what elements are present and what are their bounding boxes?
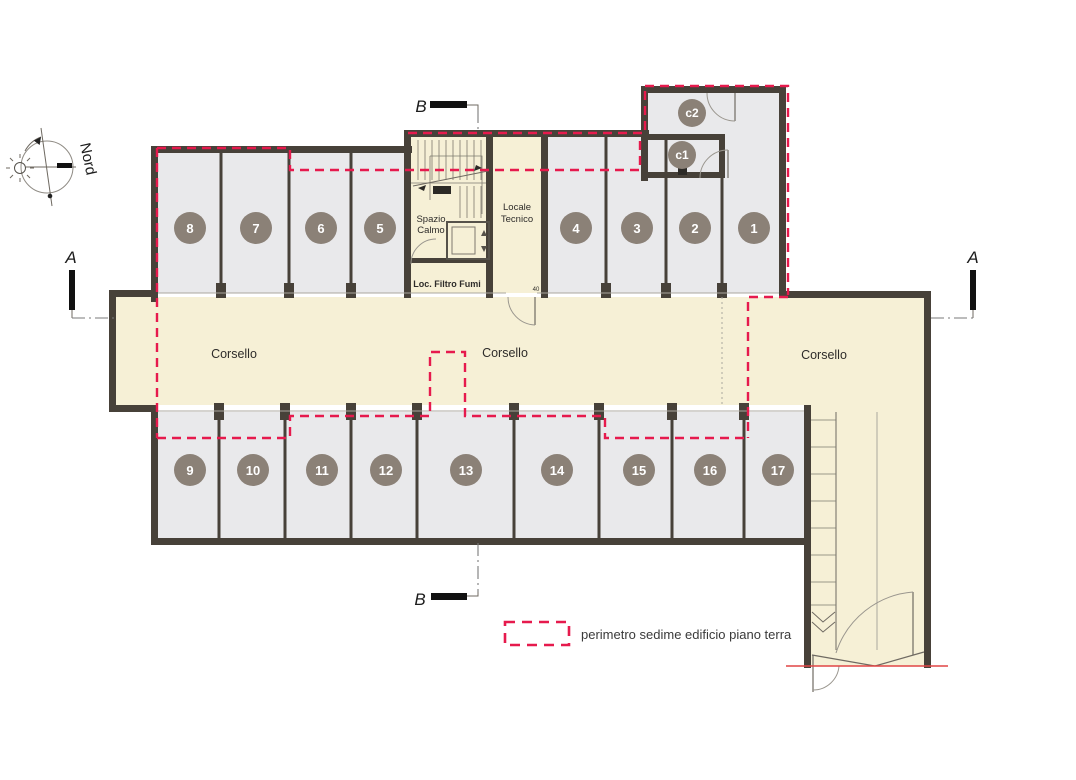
sun-icon xyxy=(6,154,34,182)
north-compass: Nord xyxy=(6,128,99,206)
stall-badge-3: 3 xyxy=(621,212,653,244)
svg-text:c2: c2 xyxy=(685,106,699,120)
stall-badge-6: 6 xyxy=(305,212,337,244)
stall-badge-8: 8 xyxy=(174,212,206,244)
stall-badge-2: 2 xyxy=(679,212,711,244)
svg-text:5: 5 xyxy=(376,221,383,236)
stall-badge-4: 4 xyxy=(560,212,592,244)
svg-text:13: 13 xyxy=(459,463,473,478)
stall-badge-10: 10 xyxy=(237,454,269,486)
svg-text:11: 11 xyxy=(315,463,329,478)
stall-badge-14: 14 xyxy=(541,454,573,486)
svg-text:10: 10 xyxy=(246,463,260,478)
section-letter-b: B xyxy=(414,590,425,609)
svg-text:Calmo: Calmo xyxy=(417,225,444,236)
section-letter-a: A xyxy=(64,248,76,267)
svg-text:2: 2 xyxy=(691,221,698,236)
stall-badge-11: 11 xyxy=(306,454,338,486)
stall-badge-13: 13 xyxy=(450,454,482,486)
stall-badge-15: 15 xyxy=(623,454,655,486)
stall-badge-12: 12 xyxy=(370,454,402,486)
cellar-badge-c1: c1 xyxy=(668,141,696,169)
svg-text:4: 4 xyxy=(572,221,580,236)
stall-badge-5: 5 xyxy=(364,212,396,244)
section-marker-a-left: A xyxy=(64,248,116,318)
north-label: Nord xyxy=(76,141,99,176)
section-letter-a: A xyxy=(966,248,978,267)
svg-text:3: 3 xyxy=(633,221,640,236)
section-marker-b-bottom: B xyxy=(414,543,478,609)
svg-text:Tecnico: Tecnico xyxy=(501,214,533,225)
corsello-label-right: Corsello xyxy=(801,348,847,362)
section-marker-a-right: A xyxy=(931,248,979,318)
svg-text:1: 1 xyxy=(750,221,757,236)
section-letter-b: B xyxy=(415,97,426,116)
svg-text:16: 16 xyxy=(703,463,717,478)
section-marker-b-top: B xyxy=(415,97,478,133)
corsello-label-left: Corsello xyxy=(211,347,257,361)
spazio-calmo-label: Spazio xyxy=(416,214,445,225)
svg-text:15: 15 xyxy=(632,463,646,478)
svg-text:8: 8 xyxy=(186,221,193,236)
legend-dashed-swatch xyxy=(505,622,569,645)
dimension-note: 40 xyxy=(533,287,540,293)
stall-badge-17: 17 xyxy=(762,454,794,486)
locale-tecnico-label: Locale xyxy=(503,202,531,213)
floor-plan-sheet: A A B B Nord Corsello xyxy=(0,0,1076,780)
svg-text:7: 7 xyxy=(252,221,259,236)
stall-badge-9: 9 xyxy=(174,454,206,486)
corsello-label-center: Corsello xyxy=(482,346,528,360)
room-fills xyxy=(116,93,924,666)
stall-badge-1: 1 xyxy=(738,212,770,244)
filtro-fumi-label: Loc. Filtro Fumi xyxy=(413,279,481,289)
svg-text:9: 9 xyxy=(186,463,193,478)
legend: perimetro sedime edificio piano terra xyxy=(505,622,792,645)
svg-text:14: 14 xyxy=(550,463,565,478)
floor-plan-drawing: A A B B Nord Corsello xyxy=(0,0,1076,780)
svg-text:6: 6 xyxy=(317,221,324,236)
svg-text:12: 12 xyxy=(379,463,393,478)
svg-text:17: 17 xyxy=(771,463,785,478)
svg-text:c1: c1 xyxy=(675,148,689,162)
cellar-badge-c2: c2 xyxy=(678,99,706,127)
stall-badge-7: 7 xyxy=(240,212,272,244)
stall-badge-16: 16 xyxy=(694,454,726,486)
legend-label: perimetro sedime edificio piano terra xyxy=(581,627,792,642)
